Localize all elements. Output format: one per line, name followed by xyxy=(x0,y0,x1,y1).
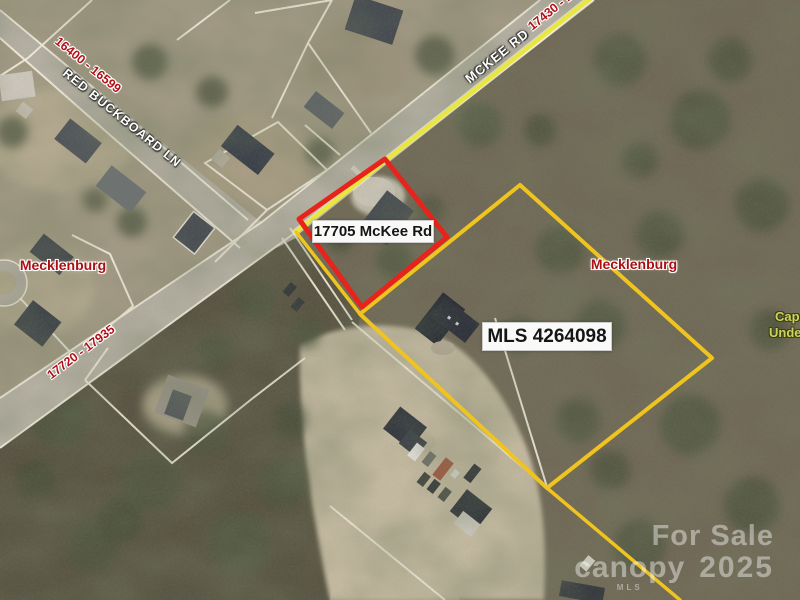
county-label-left: Mecklenburg xyxy=(20,257,106,273)
mls-number-label[interactable]: MLS 4264098 xyxy=(482,322,612,351)
watermark-brand-name: canopy xyxy=(574,553,685,583)
edge-place-label-line2: Unde xyxy=(769,325,800,340)
edge-place-label-line1: Cap xyxy=(775,309,800,324)
map-canvas[interactable]: 16400 - 16599 RED BUCKBOARD LN MCKEE RD … xyxy=(0,0,800,600)
property-address-label[interactable]: 17705 McKee Rd xyxy=(312,220,434,243)
county-label-right: Mecklenburg xyxy=(591,256,677,272)
watermark-brand-logo: canopy MLS xyxy=(574,553,685,592)
watermark-for-sale: For Sale xyxy=(574,522,774,551)
watermark-brand-sub: MLS xyxy=(617,584,643,592)
watermark: For Sale canopy MLS 2025 xyxy=(574,522,774,592)
watermark-year: 2025 xyxy=(699,553,774,583)
